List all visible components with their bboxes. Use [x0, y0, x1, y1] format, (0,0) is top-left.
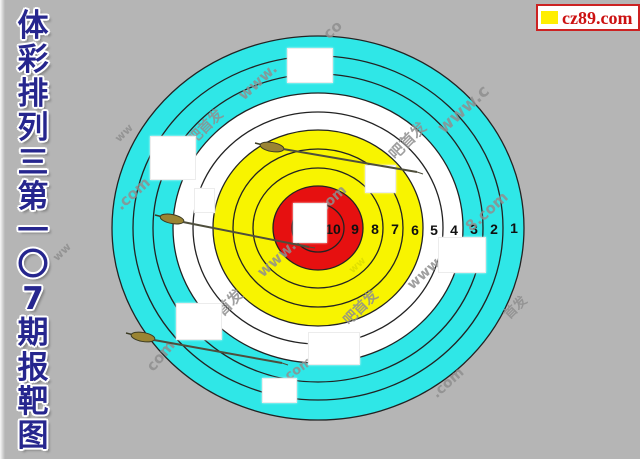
dart-arrow-middle [155, 212, 315, 248]
title-char: 〇 [18, 249, 49, 281]
lottery-target-report: 10 9 8 7 6 5 4 3 2 1 www. co www.c 吧首发 吧… [0, 0, 640, 459]
page-title: 体 彩 排 列 三 第 一 〇 7 期 报 靶 图 [10, 10, 56, 452]
title-char: 列 [18, 112, 49, 144]
banner-site-name: cz89.com [562, 9, 632, 27]
site-banner[interactable]: cz89.com [536, 4, 640, 31]
title-char: 一 [18, 215, 49, 247]
title-char: 报 [18, 352, 49, 384]
title-char: 7 [22, 283, 44, 315]
title-char: 彩 [18, 44, 49, 76]
dart-arrows [0, 0, 640, 459]
title-char: 期 [18, 317, 49, 349]
banner-bullet-icon [541, 11, 558, 24]
title-char: 靶 [18, 386, 49, 418]
title-char: 图 [18, 420, 49, 452]
dart-arrow-top [255, 140, 423, 174]
dart-arrow-bottom [126, 330, 288, 365]
title-char: 第 [18, 181, 49, 213]
title-char: 三 [18, 147, 49, 179]
title-char: 体 [18, 10, 49, 42]
title-char: 排 [18, 78, 49, 110]
